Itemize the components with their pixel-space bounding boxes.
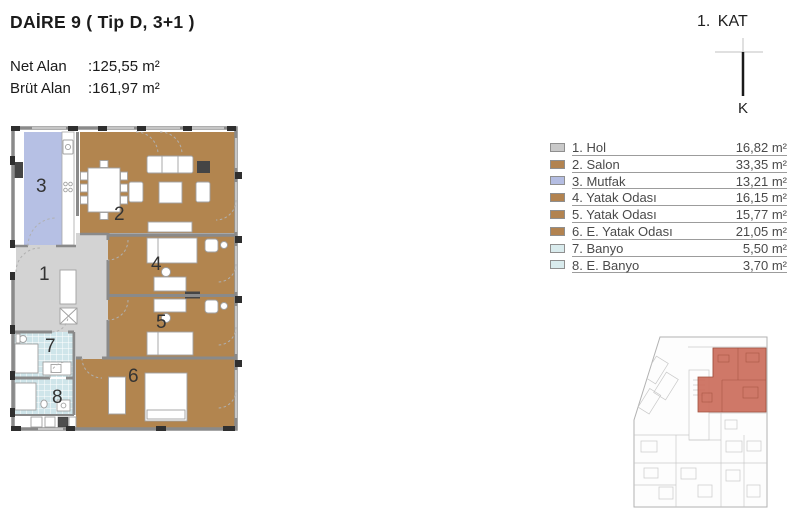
legend-swatch-yatak4 bbox=[550, 193, 565, 202]
legend-area-mutfak: 13,21 m² bbox=[736, 174, 787, 190]
room-number-banyo: 7 bbox=[45, 336, 56, 357]
fridge-icon bbox=[14, 162, 23, 178]
room-number-yatak6: 6 bbox=[128, 366, 139, 387]
room-number-ebanyo: 8 bbox=[52, 387, 63, 408]
room-number-yatak4: 4 bbox=[151, 254, 162, 275]
legend-swatch-salon bbox=[550, 160, 565, 169]
entrance-opening bbox=[10, 248, 16, 272]
legend-area-salon: 33,35 m² bbox=[736, 157, 787, 173]
legend-swatch-mutfak bbox=[550, 176, 565, 185]
room-legend: 1. Hol16,82 m² 2. Salon33,35 m² 3. Mutfa… bbox=[550, 139, 787, 273]
net-area-value: :125,55 m² bbox=[88, 58, 160, 75]
legend-label-yatak4: 4. Yatak Odası bbox=[572, 190, 657, 206]
legend-swatch-ebanyo bbox=[550, 260, 565, 269]
tv-icon bbox=[197, 161, 210, 173]
legend-area-hol: 16,82 m² bbox=[736, 140, 787, 156]
legend-row-mutfak: 3. Mutfak13,21 m² bbox=[550, 173, 787, 190]
legend-area-yatak5: 15,77 m² bbox=[736, 207, 787, 223]
brut-area-label: Brüt Alan bbox=[10, 78, 88, 100]
legend-row-salon: 2. Salon33,35 m² bbox=[550, 156, 787, 173]
dark-closet bbox=[58, 417, 68, 427]
room-number-salon: 2 bbox=[114, 204, 125, 225]
legend-swatch-yatak5 bbox=[550, 210, 565, 219]
area-info: Net Alan:125,55 m² Brüt Alan:161,97 m² bbox=[10, 56, 160, 100]
floor-label: 1. KAT bbox=[697, 13, 748, 31]
legend-label-yatak5: 5. Yatak Odası bbox=[572, 207, 657, 223]
legend-row-hol: 1. Hol16,82 m² bbox=[550, 139, 787, 156]
room-number-yatak5: 5 bbox=[156, 312, 167, 333]
legend-label-hol: 1. Hol bbox=[572, 140, 606, 156]
compass-north-letter: K bbox=[738, 100, 748, 117]
net-area-label: Net Alan bbox=[10, 56, 88, 78]
legend-row-banyo: 7. Banyo5,50 m² bbox=[550, 240, 787, 257]
north-compass-icon: K bbox=[700, 34, 790, 119]
room-number-mutfak: 3 bbox=[36, 176, 47, 197]
page-title: DAİRE 9 ( Tip D, 3+1 ) bbox=[10, 12, 195, 33]
legend-row-yatak4: 4. Yatak Odası16,15 m² bbox=[550, 189, 787, 206]
site-key-plan bbox=[626, 335, 796, 515]
legend-area-yatak4: 16,15 m² bbox=[736, 190, 787, 206]
legend-label-ebanyo: 8. E. Banyo bbox=[572, 258, 639, 274]
brut-area-row: Brüt Alan:161,97 m² bbox=[10, 78, 160, 100]
legend-swatch-yatak6 bbox=[550, 227, 565, 236]
brut-area-value: :161,97 m² bbox=[88, 80, 160, 97]
legend-label-mutfak: 3. Mutfak bbox=[572, 174, 625, 190]
room-number-hol: 1 bbox=[39, 264, 50, 285]
legend-swatch-hol bbox=[550, 143, 565, 152]
legend-area-ebanyo: 3,70 m² bbox=[743, 258, 787, 274]
legend-row-yatak6: 6. E. Yatak Odası21,05 m² bbox=[550, 223, 787, 240]
legend-label-banyo: 7. Banyo bbox=[572, 241, 623, 257]
legend-row-ebanyo: 8. E. Banyo3,70 m² bbox=[550, 257, 787, 274]
legend-swatch-banyo bbox=[550, 244, 565, 253]
legend-row-yatak5: 5. Yatak Odası15,77 m² bbox=[550, 206, 787, 223]
legend-area-banyo: 5,50 m² bbox=[743, 241, 787, 257]
apartment-floor-plan: 1 2 3 4 5 6 7 8 bbox=[8, 120, 248, 435]
legend-label-salon: 2. Salon bbox=[572, 157, 620, 173]
legend-label-yatak6: 6. E. Yatak Odası bbox=[572, 224, 673, 240]
net-area-row: Net Alan:125,55 m² bbox=[10, 56, 160, 78]
legend-area-yatak6: 21,05 m² bbox=[736, 224, 787, 240]
floor-plan-page: DAİRE 9 ( Tip D, 3+1 ) Net Alan:125,55 m… bbox=[0, 0, 800, 530]
